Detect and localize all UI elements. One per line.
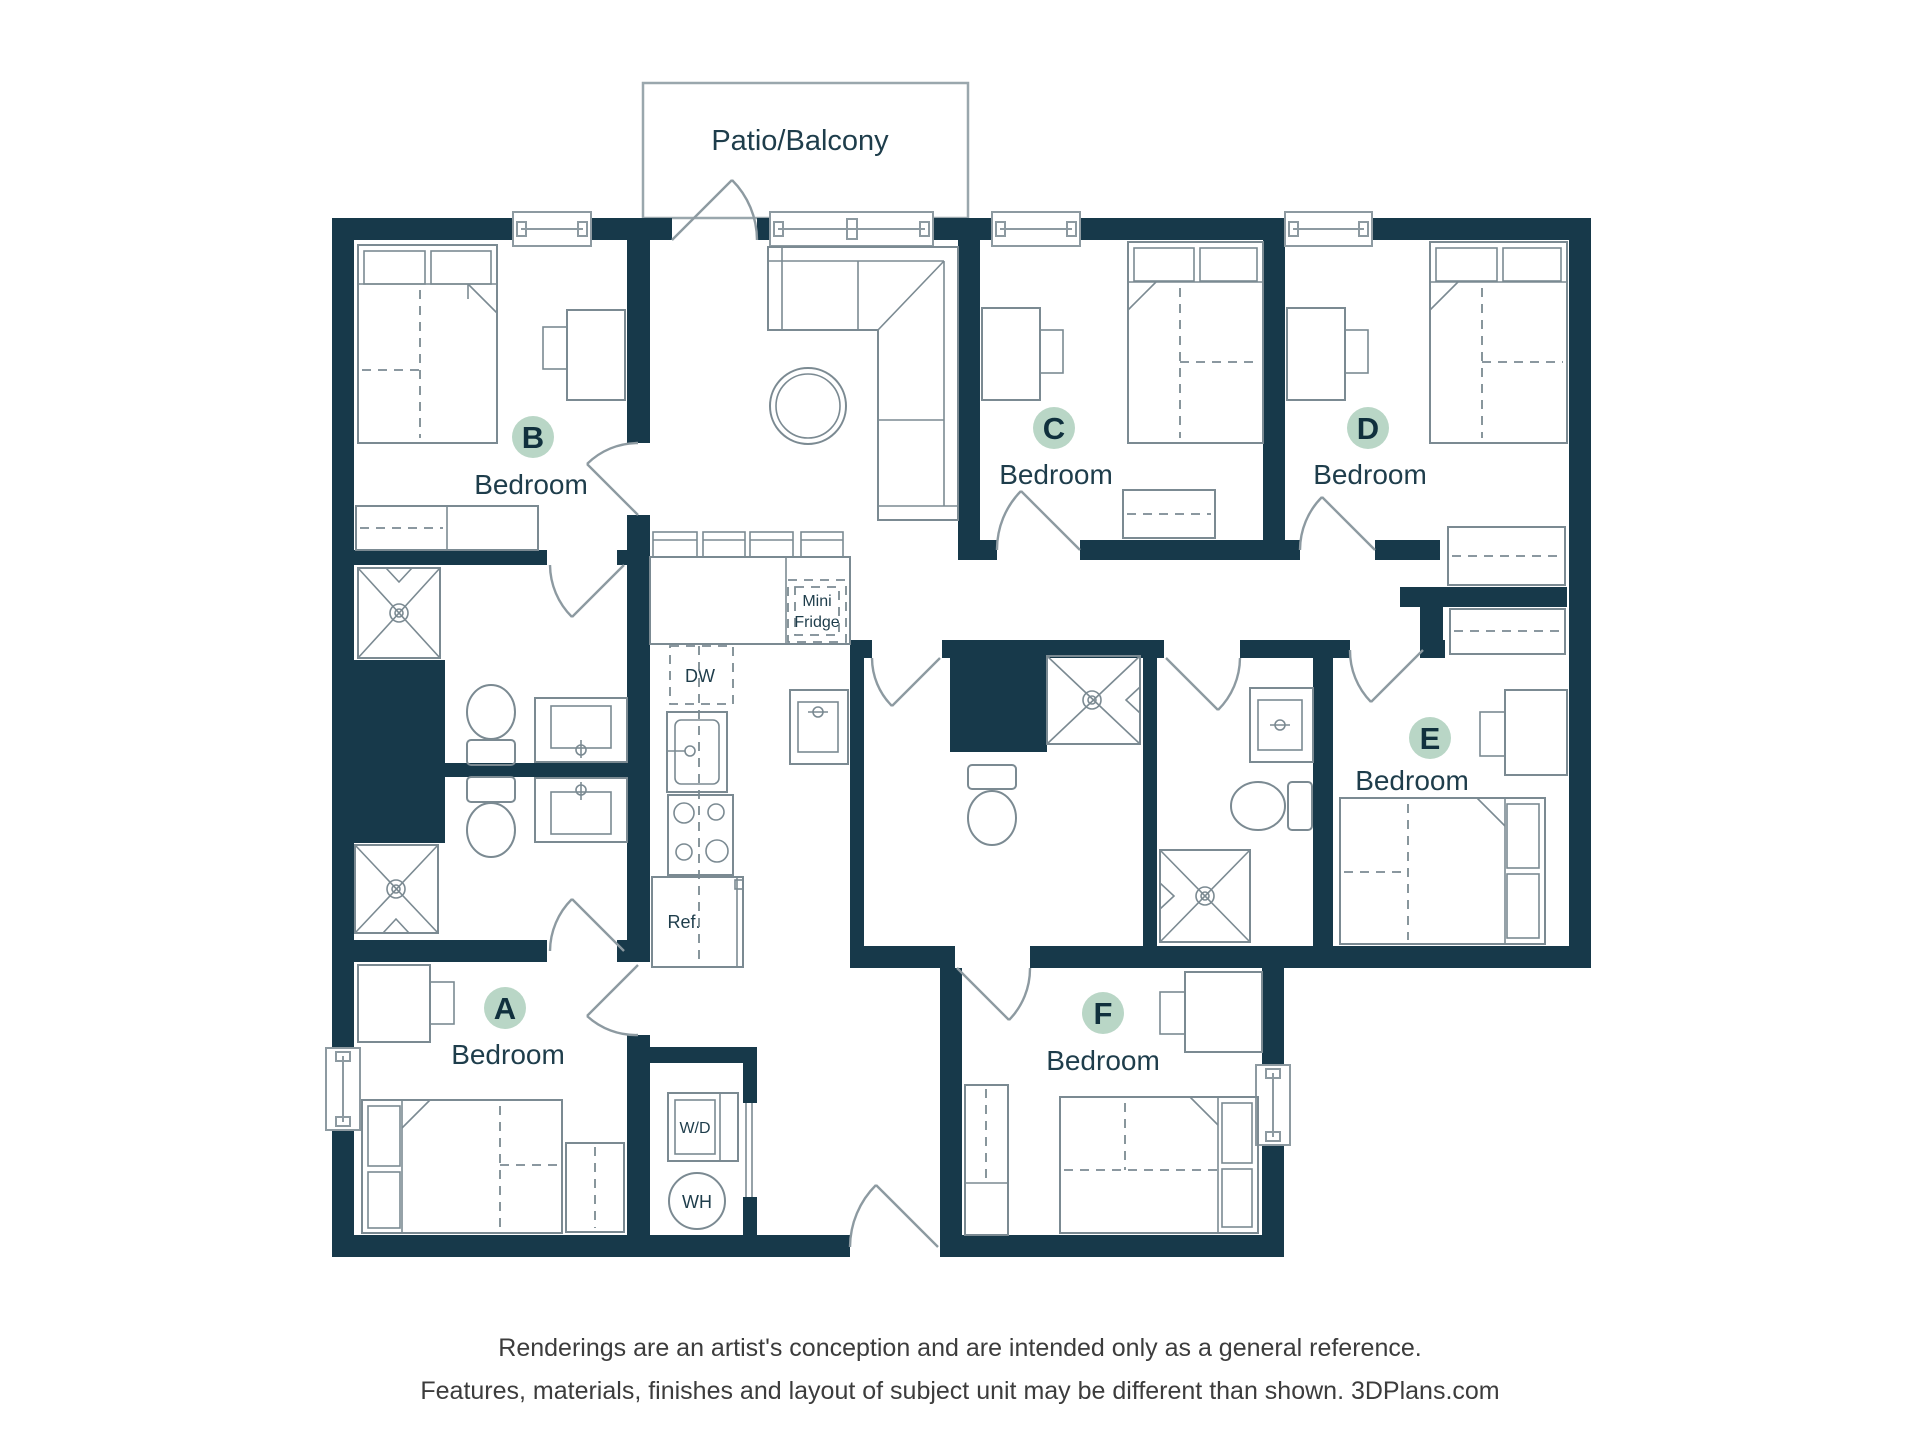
washer-dryer: W/D — [668, 1093, 738, 1161]
badge-bedroom-a: A Bedroom — [451, 987, 565, 1070]
dishwasher: DW — [670, 646, 733, 704]
corridor-vanity — [790, 690, 848, 764]
badge-bedroom-c: C Bedroom — [999, 407, 1113, 490]
entry-door — [850, 1185, 938, 1247]
window-bedroom-d — [1285, 212, 1372, 246]
toilet-3 — [968, 765, 1016, 845]
washer-dryer-label: W/D — [679, 1120, 710, 1137]
chair — [430, 982, 454, 1024]
floor-plan: Patio/Balcony — [0, 0, 1920, 1440]
bedroom-f-label: Bedroom — [1046, 1045, 1160, 1076]
desk — [1185, 972, 1262, 1052]
closet-dresser — [1448, 527, 1565, 585]
sectional-sofa — [768, 247, 958, 520]
closet — [965, 1085, 1008, 1235]
patio-balcony: Patio/Balcony — [643, 83, 968, 218]
mini-fridge-label-2: Fridge — [794, 614, 839, 631]
disclaimer: Renderings are an artist's conception an… — [420, 1334, 1499, 1405]
windows — [326, 212, 1372, 1145]
window-bedroom-f — [1256, 1065, 1290, 1145]
chair — [1480, 712, 1505, 756]
bedroom-e-label: Bedroom — [1355, 765, 1469, 796]
bath4-door — [1166, 658, 1240, 710]
bath2-door — [550, 899, 624, 951]
shower-2 — [355, 845, 438, 933]
shower-3 — [1047, 656, 1140, 744]
kitchen: Mini Fridge DW Ref. — [650, 532, 850, 967]
bedroom-f-door — [957, 968, 1030, 1020]
badge-bedroom-d: D Bedroom — [1313, 407, 1427, 490]
bath1-door — [550, 565, 624, 617]
bath3-door — [872, 658, 940, 706]
bedroom-b-label: Bedroom — [474, 469, 588, 500]
chair — [1160, 992, 1185, 1034]
window-bedroom-a — [326, 1048, 360, 1130]
desk — [1287, 308, 1345, 400]
disclaimer-line-2: Features, materials, finishes and layout… — [420, 1377, 1499, 1405]
disclaimer-line-1: Renderings are an artist's conception an… — [498, 1334, 1421, 1362]
badge-bedroom-e: E Bedroom — [1355, 717, 1469, 796]
dresser — [356, 506, 538, 550]
round-table — [770, 368, 846, 444]
bifold-door — [746, 1103, 752, 1197]
vanity-2 — [535, 778, 627, 842]
svg-text:C: C — [1043, 411, 1065, 446]
shower-1 — [358, 568, 440, 658]
water-heater: WH — [669, 1173, 725, 1229]
living-room-furniture — [768, 247, 958, 520]
desk — [358, 965, 430, 1042]
mini-fridge-label-1: Mini — [802, 593, 831, 610]
window-bedroom-c — [992, 212, 1080, 246]
patio-label: Patio/Balcony — [711, 125, 889, 157]
window-bedroom-b — [513, 212, 591, 246]
desk — [982, 308, 1040, 400]
vanity-1 — [535, 698, 627, 762]
bedroom-d-door — [1300, 497, 1375, 550]
chair — [1345, 330, 1368, 373]
svg-text:E: E — [1420, 721, 1441, 756]
svg-text:A: A — [494, 991, 516, 1026]
bedroom-b-furniture — [356, 245, 625, 550]
bedroom-a-label: Bedroom — [451, 1039, 565, 1070]
bedroom-d-label: Bedroom — [1313, 459, 1427, 490]
badge-bedroom-b: B Bedroom — [474, 416, 588, 500]
bedroom-c-label: Bedroom — [999, 459, 1113, 490]
bedroom-c-door — [997, 491, 1080, 550]
desk — [567, 310, 625, 400]
refrigerator: Ref. — [652, 877, 743, 967]
bedroom-a-door — [587, 965, 638, 1035]
svg-text:B: B — [522, 420, 544, 455]
chair — [1040, 330, 1063, 373]
kitchen-sink — [667, 712, 727, 792]
svg-text:F: F — [1094, 996, 1113, 1031]
laundry-closet: W/D WH — [668, 1093, 752, 1229]
badge-bedroom-f: F Bedroom — [1046, 992, 1160, 1076]
chair — [543, 327, 567, 369]
toilet-1 — [467, 685, 515, 765]
dresser — [1123, 490, 1215, 538]
walls — [332, 218, 1591, 1257]
desk — [1505, 690, 1567, 775]
mini-fridge: Mini Fridge — [788, 580, 846, 642]
dishwasher-label: DW — [685, 666, 715, 686]
svg-text:D: D — [1357, 411, 1379, 446]
water-heater-label: WH — [682, 1192, 712, 1212]
shower-4 — [1160, 850, 1250, 942]
closet-dresser — [1450, 609, 1565, 654]
vanity-4 — [1250, 688, 1313, 762]
bath-4 — [1160, 688, 1313, 942]
bedroom-d-furniture — [1287, 242, 1567, 585]
toilet-2 — [467, 777, 515, 857]
refrigerator-label: Ref. — [667, 912, 700, 932]
window-living — [770, 212, 933, 246]
patio-door — [672, 180, 757, 240]
floor-plan-page: Patio/Balcony — [0, 0, 1920, 1440]
closet — [566, 1143, 624, 1232]
bedroom-e-door — [1350, 650, 1423, 702]
toilet-4 — [1231, 782, 1312, 830]
bedroom-b-door — [587, 443, 638, 515]
stove — [668, 795, 733, 875]
bar-stools — [653, 532, 843, 557]
